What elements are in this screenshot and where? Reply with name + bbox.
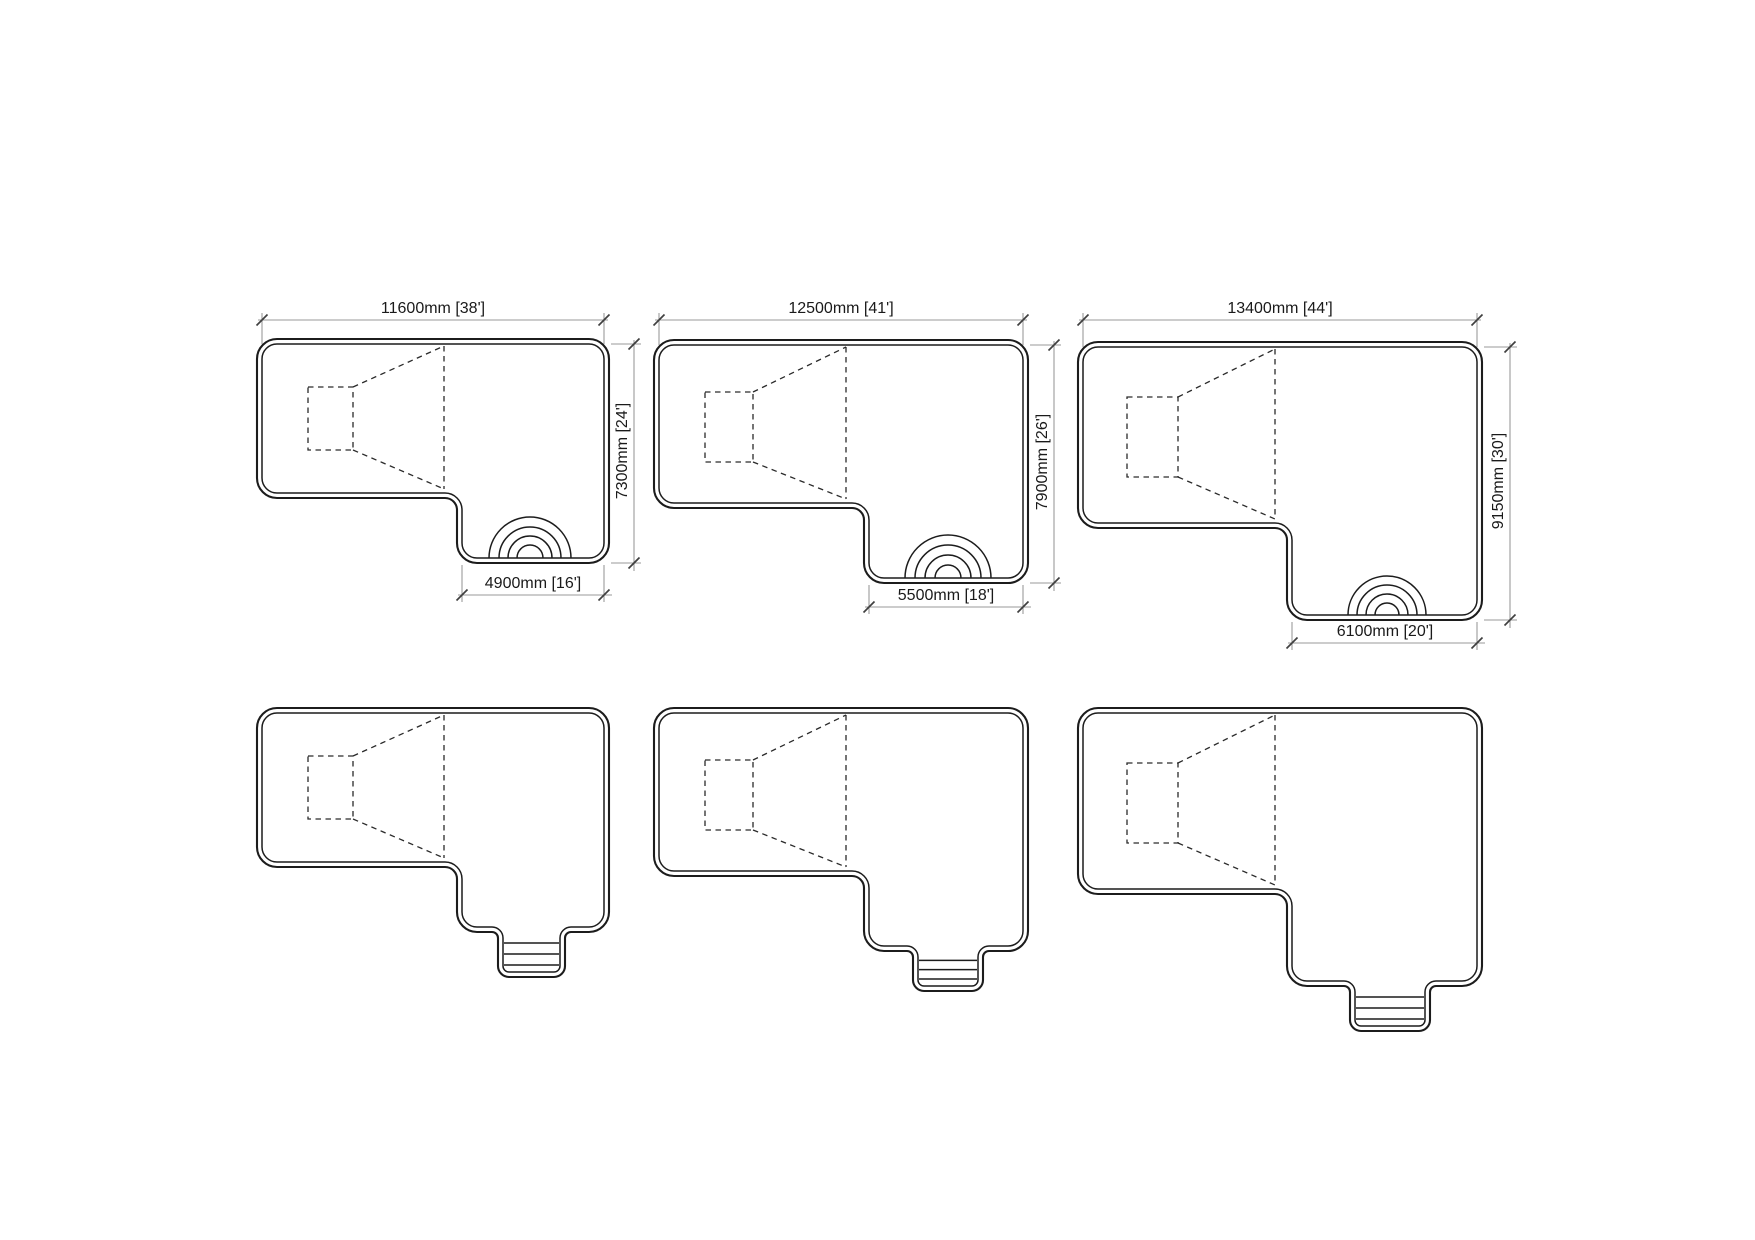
pool-inner-waterline-outline — [1083, 347, 1477, 615]
pool-outer-shell-outline — [654, 708, 1028, 991]
dim-label-41ft-width: 12500mm [41'] — [788, 300, 893, 317]
entry-steps-arc — [1348, 576, 1426, 615]
pool-inner-waterline-outline — [262, 713, 604, 972]
jet-beam-upper-dashed-line — [353, 715, 444, 756]
pool-plan-sheet: 11600mm [38'] 7300mm [24'] 4900mm [16'] … — [0, 0, 1755, 1240]
pool-outer-shell-outline — [1078, 342, 1482, 620]
entry-steps-arc — [489, 517, 571, 558]
jet-beam-lower-dashed-line — [1178, 477, 1275, 519]
dim-label-41ft-leg: 5500mm [18'] — [898, 587, 994, 604]
jet-beam-lower-dashed-line — [353, 819, 444, 858]
jet-beam-upper-dashed-line — [753, 347, 846, 392]
jet-unit-dashed-square — [705, 392, 753, 462]
entry-steps-arc — [517, 545, 543, 558]
swim-jet-dashed-figure — [308, 346, 444, 489]
jet-beam-upper-dashed-line — [753, 715, 846, 760]
pool-44ft-dimension-lines — [1078, 313, 1518, 650]
pool-44ft-plain-plan — [1078, 708, 1482, 1031]
dim-label-44ft-depth: 9150mm [30'] — [1490, 433, 1507, 529]
pool-outer-shell-outline — [257, 339, 609, 563]
pool-inner-waterline-outline — [262, 344, 604, 558]
jet-beam-upper-dashed-line — [1178, 715, 1275, 763]
dimension-line-group — [1079, 313, 1517, 650]
jet-unit-dashed-square — [308, 756, 353, 819]
swim-jet-dashed-figure — [1127, 715, 1275, 885]
swim-jet-dashed-figure — [308, 715, 444, 858]
entry-steps-arc — [1375, 603, 1399, 615]
dim-label-38ft-depth: 7300mm [24'] — [614, 403, 631, 499]
pool-inner-waterline-outline — [1083, 713, 1477, 1026]
pool-inner-waterline-outline — [659, 713, 1023, 986]
pool-inner-waterline-outline — [659, 345, 1023, 578]
dimension-line-group — [655, 313, 1061, 614]
entry-steps-arc — [1366, 594, 1408, 615]
jet-beam-lower-dashed-line — [353, 450, 444, 489]
entry-steps-arc — [935, 565, 961, 578]
pool-44ft-dimensioned-plan — [1078, 342, 1482, 620]
swim-jet-dashed-figure — [705, 347, 846, 499]
dim-label-44ft-leg: 6100mm [20'] — [1337, 623, 1433, 640]
jet-beam-upper-dashed-line — [1178, 349, 1275, 397]
jet-beam-upper-dashed-line — [353, 346, 444, 387]
jet-unit-dashed-square — [1127, 763, 1178, 843]
pool-41ft-plain-plan — [654, 708, 1028, 991]
pool-38ft-plain-plan — [257, 708, 609, 977]
jet-beam-lower-dashed-line — [1178, 843, 1275, 885]
pool-38ft-dimensioned-plan — [257, 339, 609, 563]
swim-jet-dashed-figure — [1127, 349, 1275, 519]
pool-41ft-dimensioned-plan — [654, 340, 1028, 583]
entry-steps-arc — [905, 535, 991, 578]
dim-label-41ft-depth: 7900mm [26'] — [1034, 414, 1051, 510]
dim-label-44ft-width: 13400mm [44'] — [1227, 300, 1332, 317]
pool-41ft-dimension-lines — [654, 313, 1062, 614]
jet-beam-lower-dashed-line — [753, 462, 846, 499]
jet-beam-lower-dashed-line — [753, 830, 846, 867]
entry-steps-arc — [925, 555, 971, 578]
dimension-labels: 11600mm [38'] 7300mm [24'] 4900mm [16'] … — [381, 300, 1507, 640]
pool-outer-shell-outline — [1078, 708, 1482, 1031]
swim-jet-dashed-figure — [705, 715, 846, 867]
jet-unit-dashed-square — [1127, 397, 1178, 477]
dim-label-38ft-width: 11600mm [38'] — [381, 300, 485, 317]
jet-unit-dashed-square — [308, 387, 353, 450]
entry-steps-arc — [508, 536, 552, 558]
dim-label-38ft-leg: 4900mm [16'] — [485, 575, 581, 592]
pool-diagram-svg: 11600mm [38'] 7300mm [24'] 4900mm [16'] … — [0, 0, 1755, 1240]
pool-outer-shell-outline — [257, 708, 609, 977]
jet-unit-dashed-square — [705, 760, 753, 830]
